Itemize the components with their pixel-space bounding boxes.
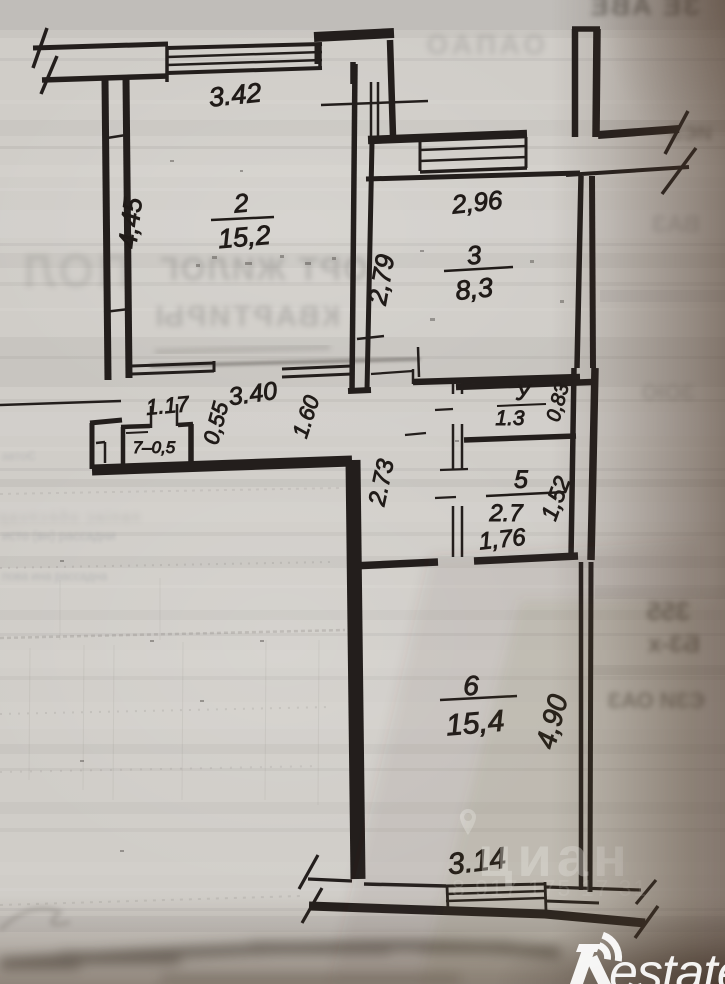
svg-text:estate: estate (609, 944, 725, 984)
